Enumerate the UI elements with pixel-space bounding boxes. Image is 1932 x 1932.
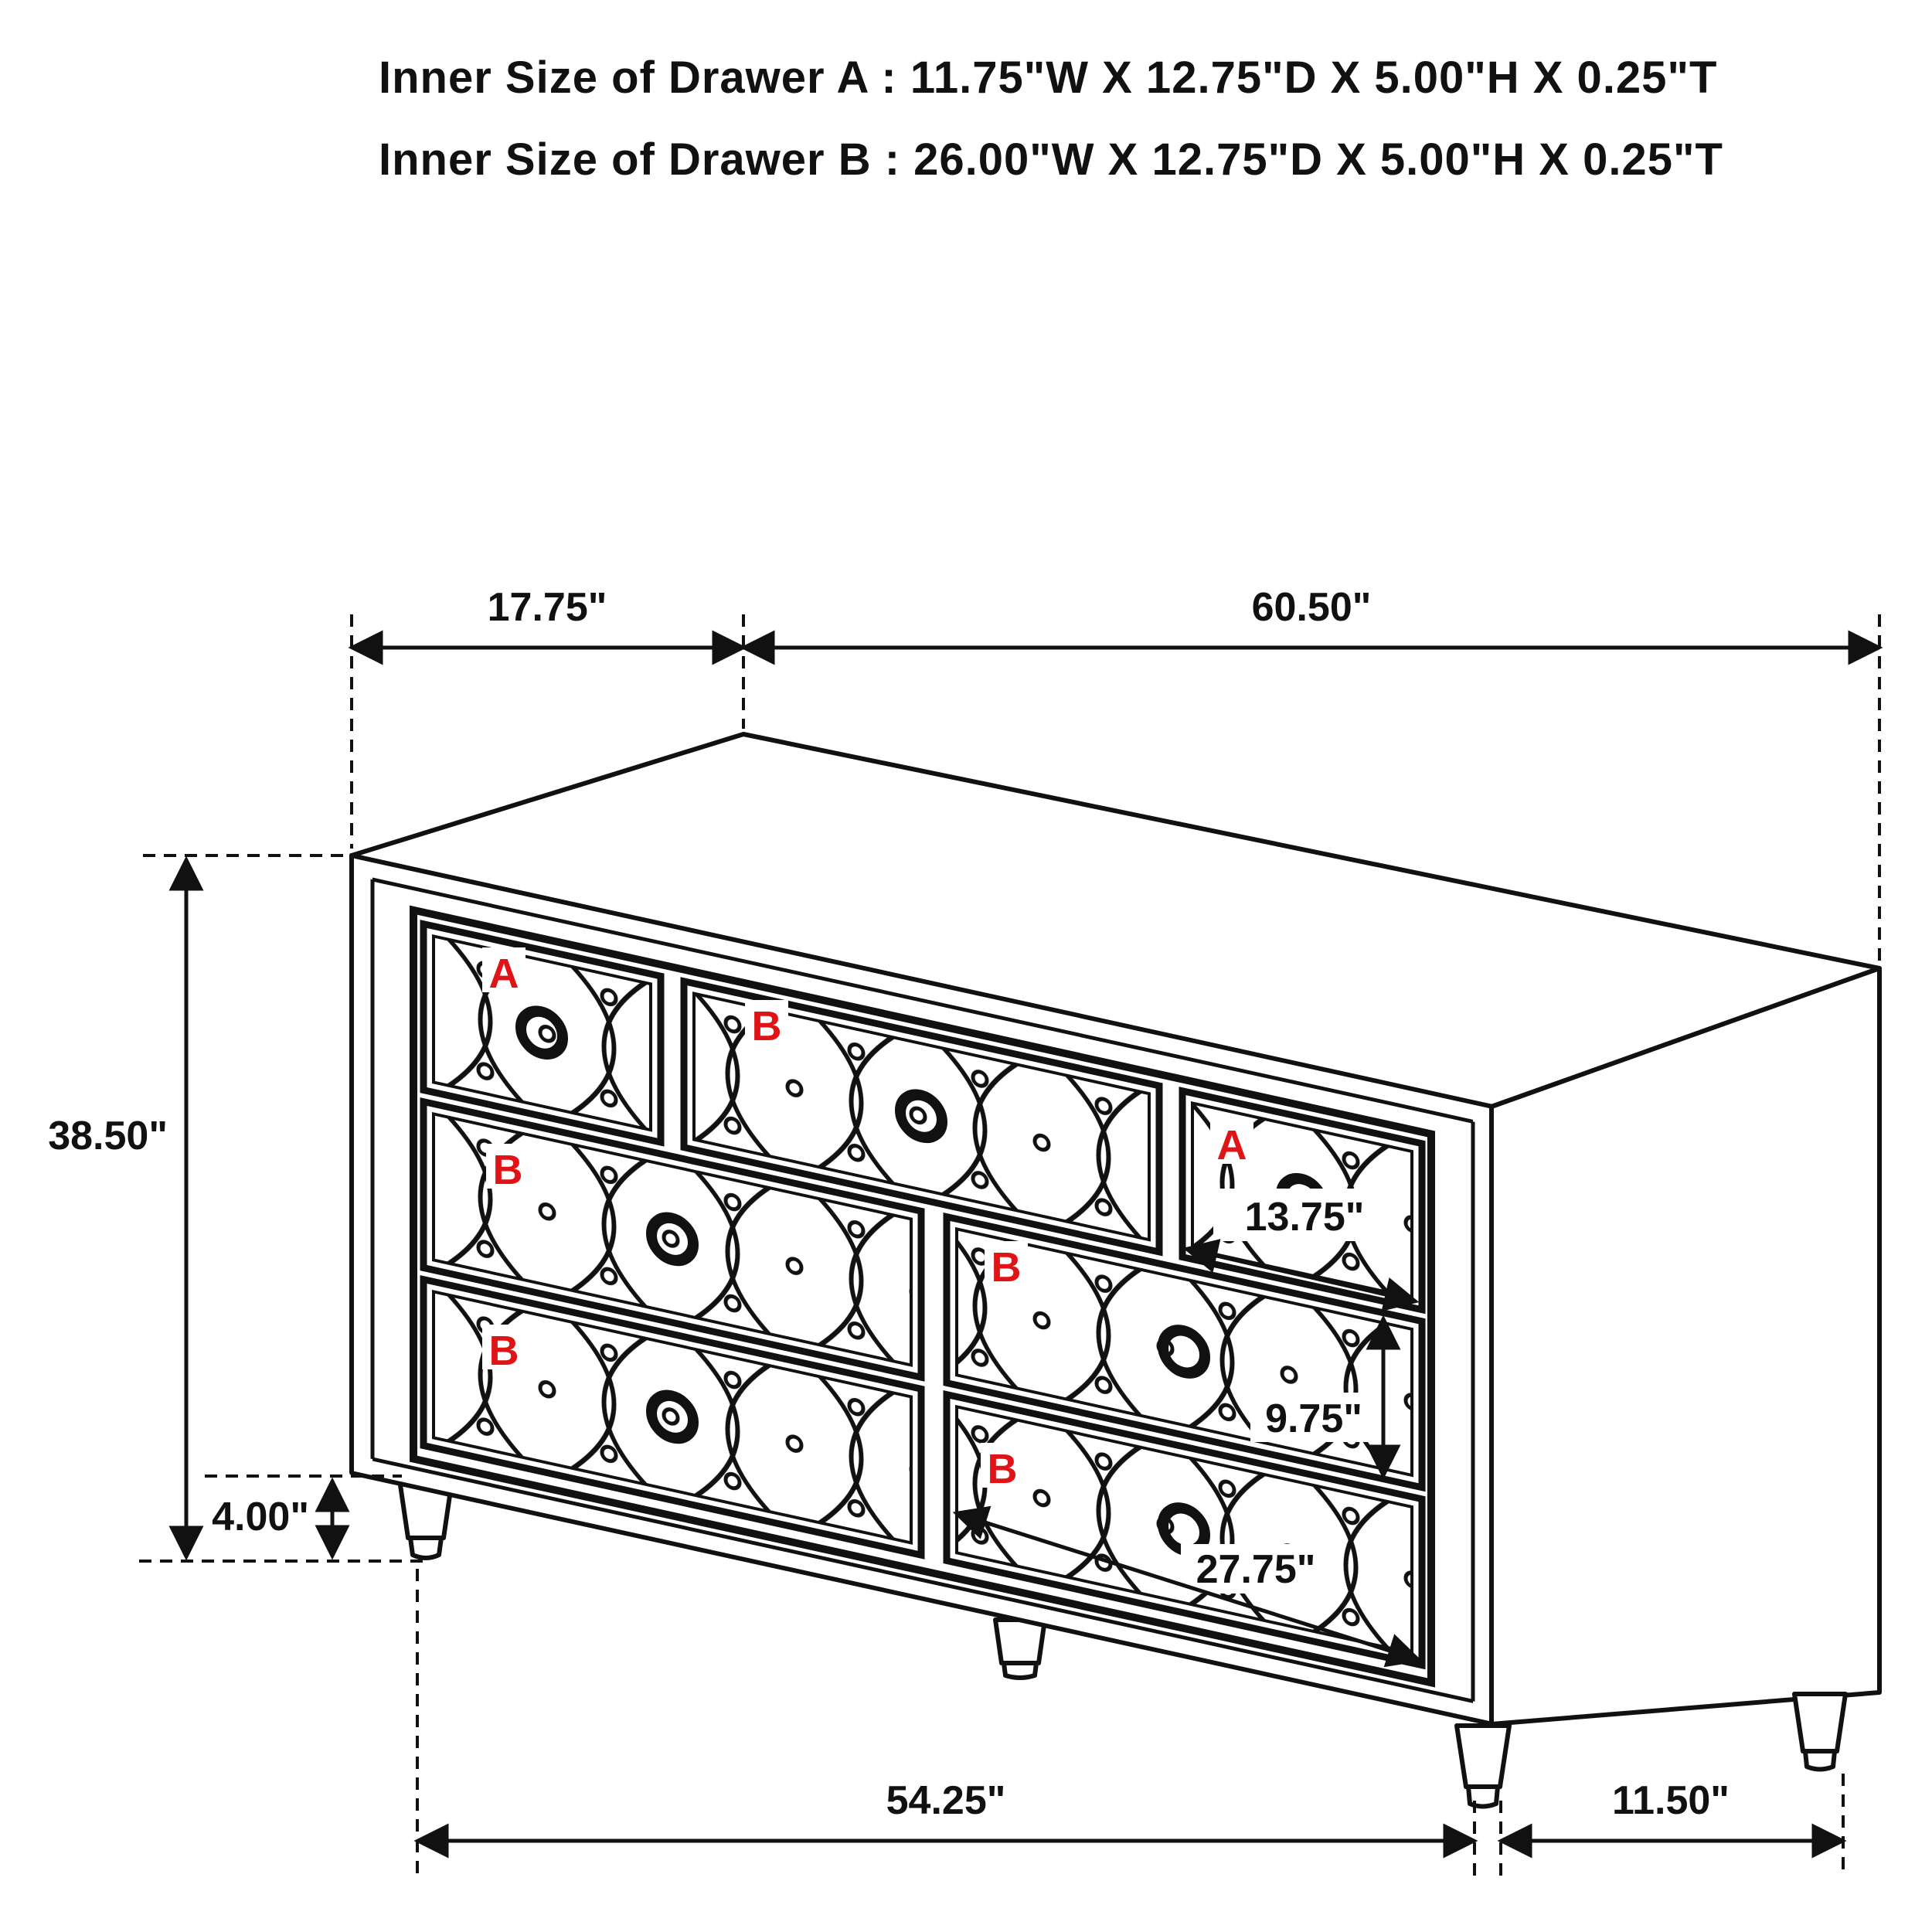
- dim-top-left-width-label: 17.75": [488, 585, 607, 630]
- dim-leg-height-label: 4.00": [212, 1495, 309, 1539]
- header-line-a: Inner Size of Drawer A : 11.75"W X 12.75…: [379, 53, 1717, 103]
- dim-drawer-a-width-label: 13.75": [1245, 1195, 1365, 1240]
- dresser-drawing: A B A B B B B: [352, 734, 1879, 1807]
- dim-side-depth: 11.50": [1501, 1774, 1843, 1876]
- header-line-b: Inner Size of Drawer B : 26.00"W X 12.75…: [379, 134, 1723, 185]
- dim-drawer-b-width-label: 27.75": [1196, 1547, 1316, 1592]
- dim-top-width-label: 60.50": [1252, 585, 1372, 630]
- dresser-dimension-diagram: Inner Size of Drawer A : 11.75"W X 12.75…: [0, 0, 1932, 1932]
- drawer-b3-label: B: [493, 1147, 523, 1193]
- front-middle-leg: [995, 1620, 1045, 1678]
- dim-total-height-label: 38.50": [48, 1114, 168, 1158]
- dim-base-width-label: 54.25": [886, 1778, 1006, 1823]
- drawer-a1-label: A: [489, 951, 519, 997]
- drawer-b6-label: B: [988, 1446, 1018, 1492]
- drawer-b5-label: B: [489, 1328, 519, 1374]
- back-right-leg: [1794, 1694, 1845, 1770]
- dim-drawer-b-height-label: 9.75": [1265, 1396, 1362, 1441]
- drawer-a2-label: A: [1217, 1122, 1247, 1168]
- dim-leg-height: 4.00": [205, 1476, 402, 1556]
- header: Inner Size of Drawer A : 11.75"W X 12.75…: [379, 53, 1723, 185]
- drawer-b1-label: B: [752, 1003, 782, 1049]
- front-right-leg: [1457, 1726, 1509, 1807]
- dim-side-depth-label: 11.50": [1612, 1778, 1730, 1823]
- drawer-b4-label: B: [992, 1244, 1022, 1291]
